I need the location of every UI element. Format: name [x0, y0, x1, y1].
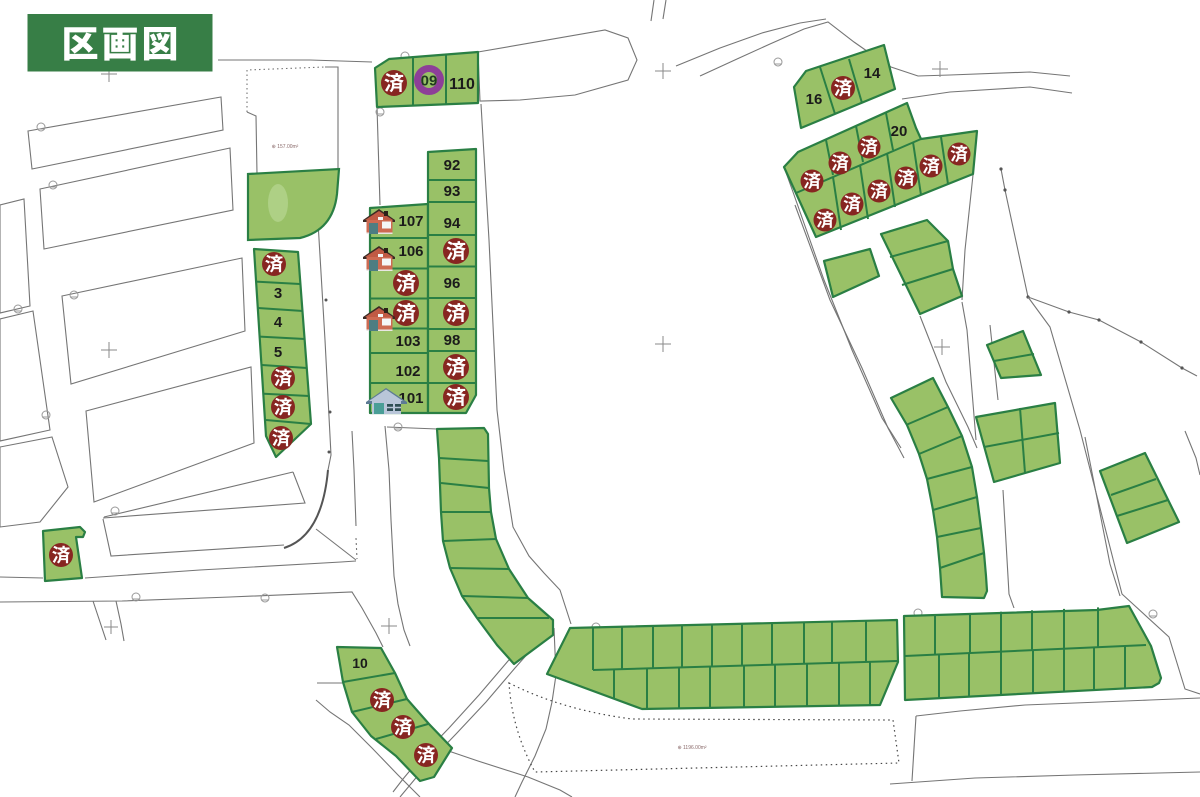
- svg-text:101: 101: [398, 390, 423, 407]
- svg-text:20: 20: [891, 123, 908, 140]
- svg-text:10: 10: [352, 655, 368, 671]
- svg-text:102: 102: [395, 363, 420, 380]
- svg-text:96: 96: [444, 275, 461, 292]
- svg-text:98: 98: [444, 332, 461, 349]
- svg-text:4: 4: [274, 314, 283, 331]
- svg-text:16: 16: [806, 91, 823, 108]
- svg-text:110: 110: [449, 76, 475, 93]
- svg-text:103: 103: [395, 333, 420, 350]
- svg-text:09: 09: [421, 73, 438, 90]
- svg-text:106: 106: [398, 243, 423, 260]
- svg-text:⊕ 157.00m²: ⊕ 157.00m²: [272, 144, 299, 150]
- svg-text:107: 107: [398, 213, 423, 230]
- svg-text:3: 3: [274, 285, 282, 302]
- svg-text:92: 92: [444, 157, 461, 174]
- svg-text:94: 94: [444, 215, 461, 232]
- svg-text:93: 93: [444, 183, 461, 200]
- svg-text:⊕ 1196.00m²: ⊕ 1196.00m²: [677, 745, 706, 751]
- svg-text:5: 5: [274, 344, 282, 361]
- svg-text:14: 14: [864, 65, 881, 82]
